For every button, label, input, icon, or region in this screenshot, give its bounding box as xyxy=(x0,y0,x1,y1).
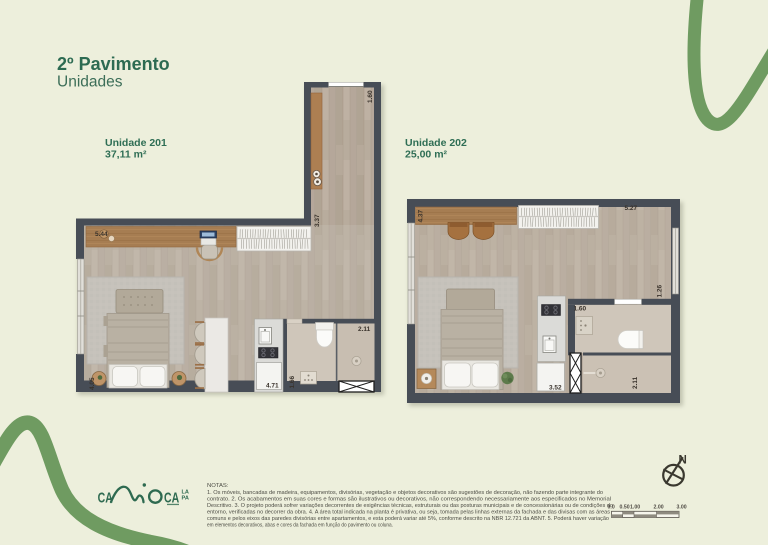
svg-text:1.00: 1.00 xyxy=(630,505,640,511)
svg-text:1.60: 1.60 xyxy=(367,90,374,103)
svg-text:2.11: 2.11 xyxy=(358,326,371,333)
svg-text:Descritivo. 3. O projeto pode: Descritivo. 3. O projeto poderá sofrer v… xyxy=(207,503,614,509)
svg-text:1.60: 1.60 xyxy=(574,306,587,313)
svg-text:N: N xyxy=(679,455,687,467)
svg-text:5.44: 5.44 xyxy=(95,231,108,238)
svg-text:NOTAS:: NOTAS: xyxy=(207,483,229,489)
svg-text:Unidade 201: Unidade 201 xyxy=(105,137,167,149)
svg-text:1.66: 1.66 xyxy=(289,375,296,388)
svg-text:Unidades: Unidades xyxy=(57,74,123,91)
svg-text:contrato. 2. Os acabamentos: contrato. 2. Os acabamentos em suas core… xyxy=(207,497,611,503)
svg-text:4.37: 4.37 xyxy=(418,209,425,222)
svg-text:4.71: 4.71 xyxy=(266,383,279,390)
svg-text:1.26: 1.26 xyxy=(657,284,664,297)
svg-text:3.37: 3.37 xyxy=(314,214,321,227)
svg-text:2º Pavimento: 2º Pavimento xyxy=(57,54,170,74)
svg-text:3.52: 3.52 xyxy=(549,385,562,392)
svg-text:CA: CA xyxy=(98,490,113,506)
svg-text:0.0: 0.0 xyxy=(608,505,615,511)
svg-text:37,11 m²: 37,11 m² xyxy=(105,149,147,161)
svg-text:2.11: 2.11 xyxy=(632,376,639,389)
svg-text:25,00 m²: 25,00 m² xyxy=(405,149,448,161)
svg-text:Unidade 202: Unidade 202 xyxy=(405,137,467,149)
svg-text:3.00: 3.00 xyxy=(677,505,687,511)
svg-text:comuns e pelos eixos das pared: comuns e pelos eixos das paredes divisór… xyxy=(207,516,610,522)
svg-text:entorno, verificadas no decorr: entorno, verificadas no decorrer da obra… xyxy=(207,510,610,516)
svg-text:em elementos decorativos, abas: em elementos decorativos, abas e cores d… xyxy=(207,523,393,529)
svg-text:PA: PA xyxy=(182,496,189,502)
svg-text:CA: CA xyxy=(164,490,179,506)
svg-text:5.27: 5.27 xyxy=(625,205,638,212)
svg-text:2.00: 2.00 xyxy=(654,505,664,511)
svg-text:1. Os móveis, bancadas de made: 1. Os móveis, bancadas de madeira, equip… xyxy=(207,490,604,496)
svg-text:4.05: 4.05 xyxy=(89,377,96,390)
svg-text:0.50: 0.50 xyxy=(620,505,630,511)
